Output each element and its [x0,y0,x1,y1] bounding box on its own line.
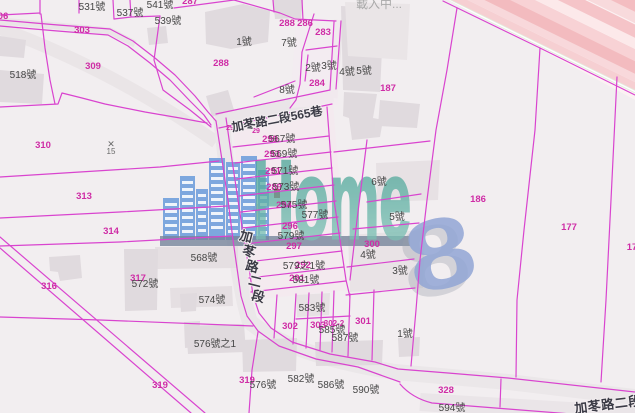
svg-text:1號: 1號 [236,35,252,48]
svg-text:288: 288 [213,58,229,69]
svg-text:297: 297 [286,241,302,252]
svg-text:577號: 577號 [302,208,329,221]
svg-text:4號: 4號 [339,65,355,78]
svg-text:187: 187 [380,83,396,94]
svg-text:283: 283 [315,27,331,38]
svg-text:576號之1: 576號之1 [194,337,237,350]
svg-text:328: 328 [438,385,454,396]
svg-text:537號: 537號 [117,6,144,19]
svg-text:567號: 567號 [269,132,296,145]
svg-text:531號: 531號 [79,0,106,13]
svg-text:579之1號: 579之1號 [283,259,325,272]
svg-text:314: 314 [103,226,120,237]
svg-text:574號: 574號 [199,293,226,306]
svg-text:572號: 572號 [132,277,159,290]
svg-text:2號: 2號 [305,61,321,74]
svg-text:541號: 541號 [147,0,174,11]
svg-text:309: 309 [85,61,101,72]
svg-text:316: 316 [41,281,57,292]
svg-text:301: 301 [355,316,372,327]
svg-text:568號: 568號 [191,251,218,264]
svg-text:286: 286 [297,18,313,29]
svg-text:7號: 7號 [281,36,297,49]
svg-text:587號: 587號 [332,331,359,344]
svg-text:5號: 5號 [389,210,405,223]
svg-text:539號: 539號 [155,14,182,27]
svg-text:590號: 590號 [353,383,380,396]
svg-text:300: 300 [364,239,380,250]
svg-text:303: 303 [74,25,90,36]
svg-text:313: 313 [76,191,92,202]
svg-text:569號: 569號 [271,147,298,160]
svg-text:576號: 576號 [250,378,277,391]
svg-text:310: 310 [35,140,51,151]
svg-text:3號: 3號 [392,264,408,277]
svg-text:3號: 3號 [321,59,337,72]
svg-text:571號: 571號 [272,164,299,177]
svg-text:288: 288 [279,18,295,29]
svg-text:586號: 586號 [318,378,345,391]
svg-text:287: 287 [182,0,198,7]
svg-text:8號: 8號 [279,83,295,96]
svg-text:15: 15 [107,147,116,156]
svg-text:581號: 581號 [293,273,320,286]
svg-text:582號: 582號 [288,372,315,385]
svg-text:518號: 518號 [10,68,37,81]
svg-text:583號: 583號 [299,301,326,314]
svg-text:319: 319 [152,380,168,391]
svg-text:4號: 4號 [360,248,376,261]
svg-text:579號: 579號 [278,229,305,242]
svg-text:302: 302 [282,321,298,332]
svg-text:06: 06 [0,11,8,22]
svg-text:284: 284 [309,78,326,89]
svg-text:6號: 6號 [371,175,387,188]
svg-text:1號: 1號 [397,327,413,340]
svg-text:594號: 594號 [439,401,466,413]
svg-text:186: 186 [470,194,486,205]
svg-text:573號: 573號 [273,180,300,193]
svg-text:17: 17 [627,242,635,253]
svg-text:177: 177 [561,222,577,233]
svg-text:5號: 5號 [356,64,372,77]
svg-text:載入中...: 載入中... [356,0,402,11]
